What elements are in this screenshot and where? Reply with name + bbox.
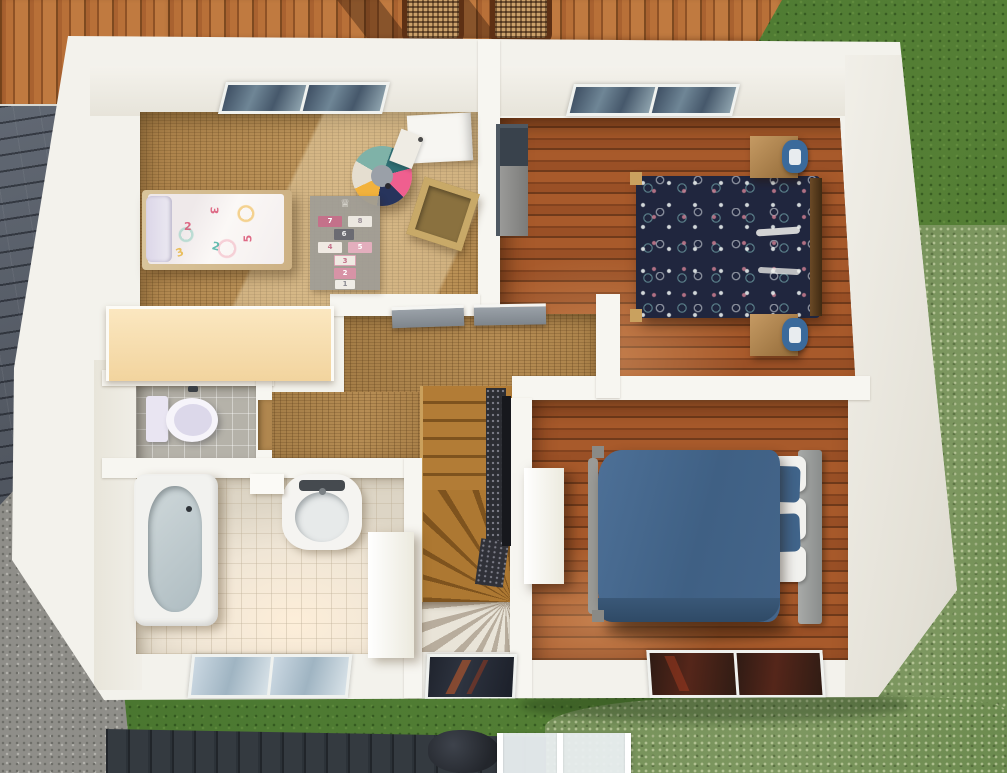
bed-frame-corner [630,172,642,185]
bed-frame-corner [630,309,642,322]
duvet-print-glyph: 2 [184,220,192,233]
window-pane [191,657,270,695]
duvet-print-glyph: 5 [241,235,254,243]
master-bedroom-window [566,84,740,116]
wall-hall-master [596,294,620,398]
blue-bed-side-rail [588,458,598,614]
duvet-print-glyph: 3 [207,207,220,215]
canopy-frame-bar [557,733,563,773]
window-reflection [467,660,489,694]
hopscotch-cell: 5 [348,242,372,253]
rattan-chair [490,0,552,43]
sheet-fold [756,226,800,236]
bathtub [134,474,218,626]
bedside-lamp [782,140,808,173]
toilet-seat [174,404,212,436]
duvet-fold [598,598,780,622]
master-wardrobe-top [500,128,528,168]
lamp-face [789,327,801,343]
kids-bed: 3 2 5 2 3 [142,190,292,270]
bath-shelf [250,474,284,494]
bed-frame-corner [592,446,604,458]
window-pane [222,85,306,111]
beach-ball-center [371,165,393,187]
garden-rock [428,730,500,773]
wc-door-opening [258,400,272,450]
hopscotch-cell: 2 [334,268,356,279]
toilet-bowl [166,398,218,442]
hopscotch-rug: ♕ 7 8 6 4 5 3 2 1 [310,196,380,290]
open-door-panel [474,303,546,325]
hopscotch-cell: 1 [335,280,355,289]
blue-bed-duvet [598,450,780,622]
crown-icon: ♕ [310,197,380,211]
kids-room-window [218,82,390,114]
master-bed-headboard [810,178,822,316]
glass-canopy [497,733,631,773]
kids-cabinet [407,112,473,163]
bedside-lamp [782,318,808,351]
window-pane [270,657,349,695]
window-pane [570,87,655,113]
window-pane [651,87,736,113]
bed-frame-corner [592,610,604,622]
window-reflection [664,656,689,691]
floor-plan-scene: 3 2 5 2 3 ♕ 7 8 6 4 5 3 2 1 [0,0,1007,773]
hallway-floor-left [268,392,422,464]
bedroom2-window [646,650,825,698]
window-pane [650,653,736,695]
hopscotch-cell: 6 [334,229,354,240]
sink-basin [295,492,349,542]
open-door-panel [392,305,465,329]
wc-tap [188,386,198,392]
sink-tap [319,488,326,495]
wall-master-bedroom2 [512,376,870,400]
master-wardrobe-front [500,166,528,236]
stair-landing [420,602,510,652]
hopscotch-cell: 4 [318,242,342,253]
bathtub-drain [186,506,192,512]
canopy-frame-bar [625,733,631,773]
toilet-tank [146,396,168,442]
bedroom2-dresser [524,468,564,584]
lamp-face [789,149,801,165]
stairwell-void [502,396,511,546]
house-shell: 3 2 5 2 3 ♕ 7 8 6 4 5 3 2 1 [0,0,1007,773]
bath-cabinet [368,532,414,658]
hopscotch-cell: 8 [348,216,372,227]
rattan-chair [402,0,464,43]
beach-ball-eyelet [385,183,391,189]
canopy-frame-bar [497,733,503,773]
kids-bed-pillow [146,196,172,262]
master-bed [636,176,820,318]
duvet-print-glyph: 2 [210,239,221,254]
window-pane [736,653,822,695]
hopscotch-cell: 3 [334,255,356,266]
bathtub-basin [148,486,202,612]
hopscotch-cell: 7 [318,216,342,227]
bathroom-window [188,654,353,698]
sheet-fold [758,267,800,275]
railing-shadow-fan [420,602,510,652]
duvet-print-glyph: 3 [174,245,186,260]
bathroom-sink [282,474,362,550]
window-pane [302,85,386,111]
cream-wardrobe [106,306,334,381]
hallway-window [425,654,517,700]
cabinet-handle [418,137,423,142]
window-pane [428,657,514,697]
